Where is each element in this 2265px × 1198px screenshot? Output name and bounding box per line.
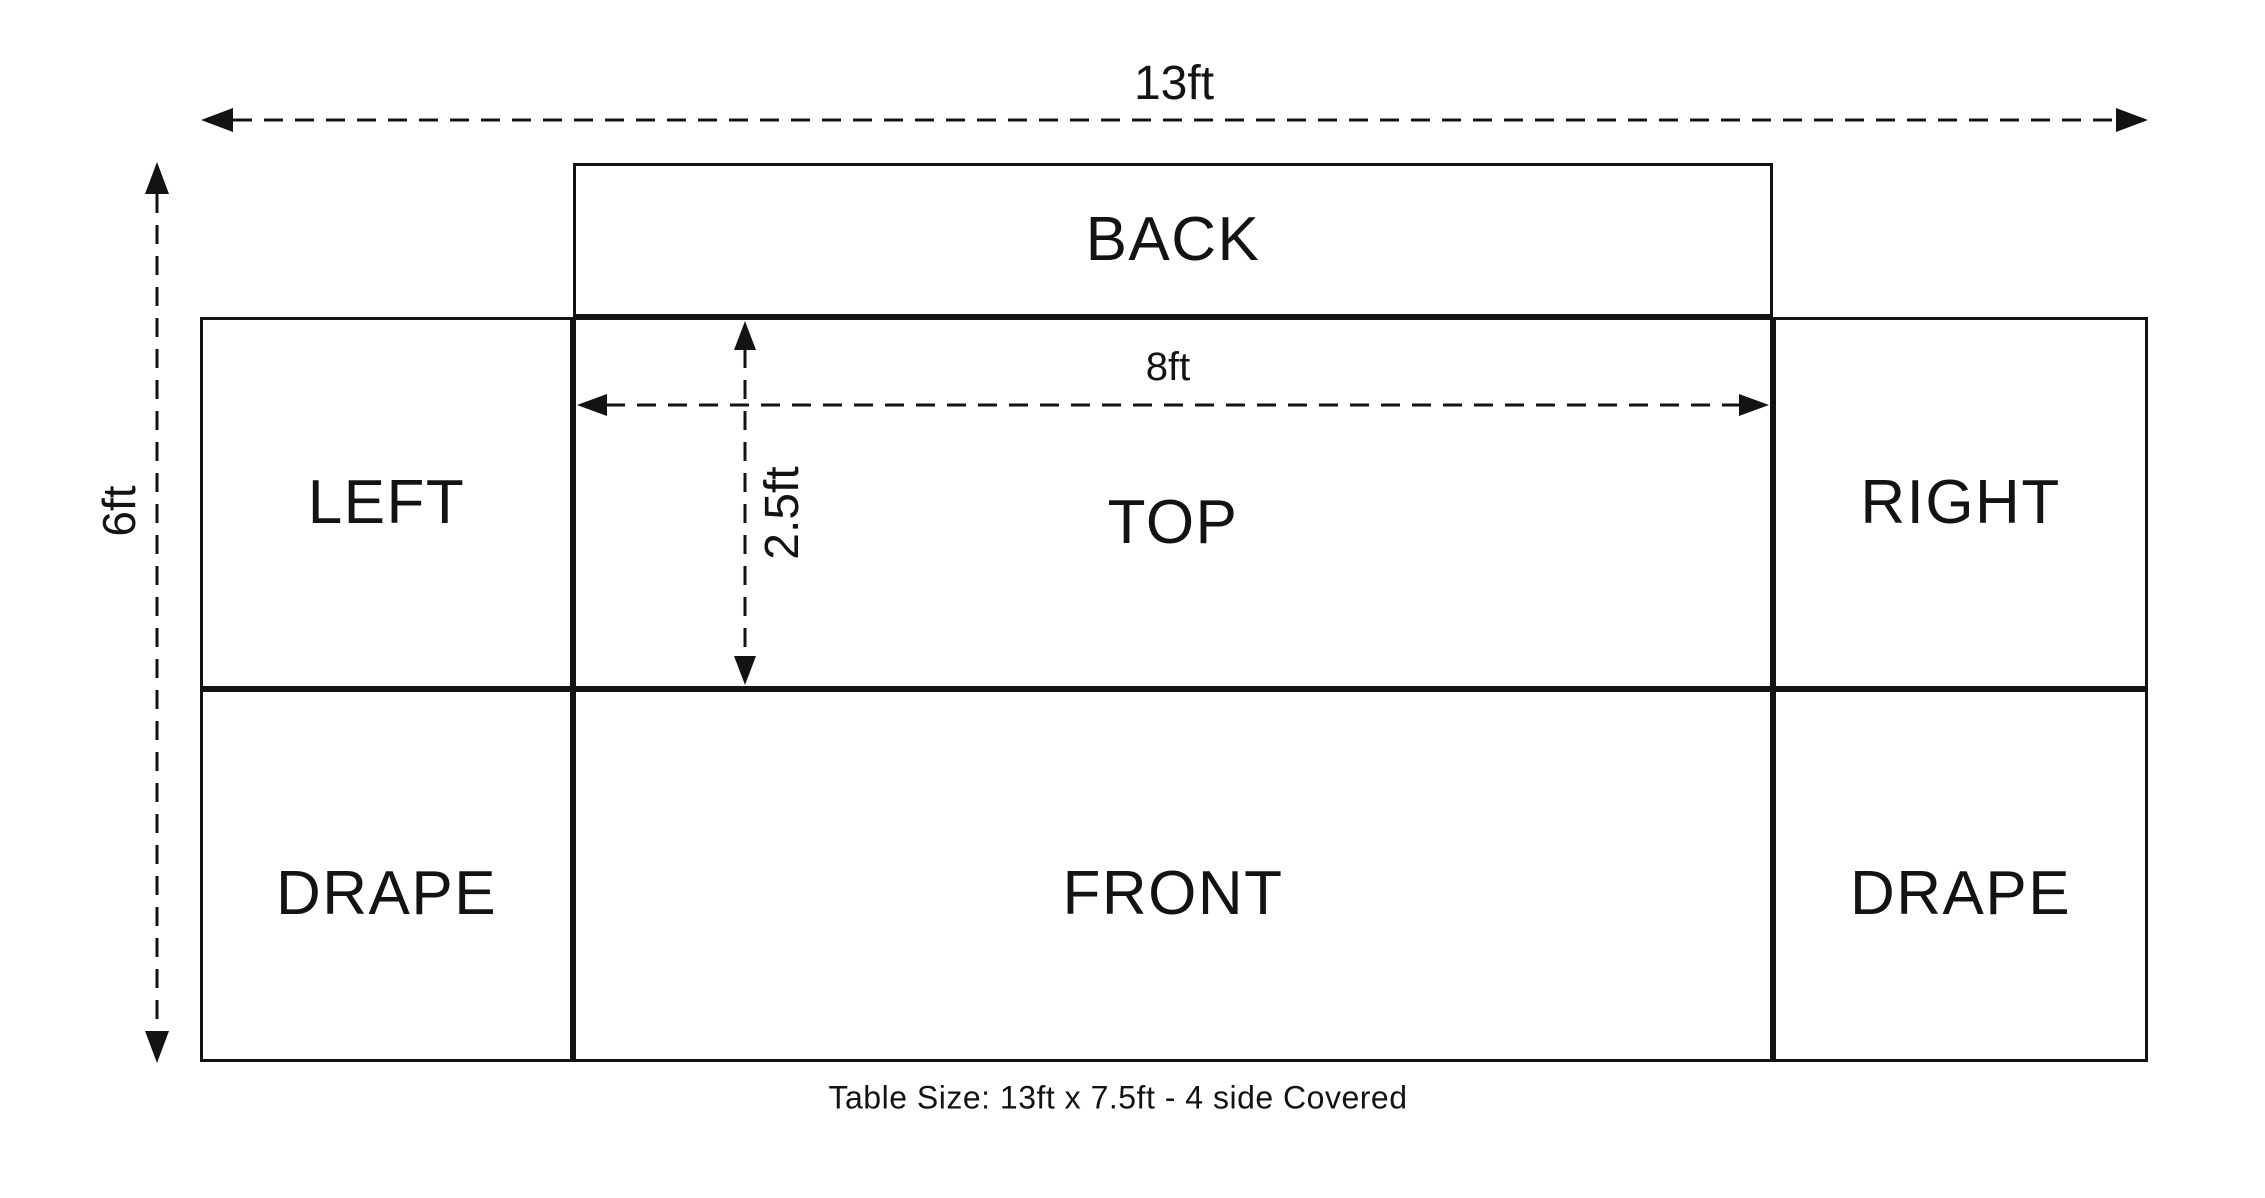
- panel-front: FRONT: [573, 689, 1773, 1062]
- panel-left: LEFT: [200, 317, 573, 689]
- arrowhead-right-icon: [2116, 108, 2148, 132]
- arrowhead-left-icon: [201, 108, 233, 132]
- total-width-arrow: [201, 108, 2148, 132]
- top-width-dimension-label: 8ft: [1146, 347, 1190, 387]
- panel-back: BACK: [573, 163, 1773, 317]
- panel-left-label: LEFT: [308, 472, 466, 534]
- panel-drape-right-label: DRAPE: [1850, 863, 2071, 925]
- arrowhead-down-icon: [145, 1031, 169, 1063]
- panel-drape-left-label: DRAPE: [276, 863, 497, 925]
- table-cover-size-diagram: BACK LEFT TOP RIGHT DRAPE FRONT DRAPE 13…: [0, 0, 2265, 1198]
- total-width-dimension-label: 13ft: [1134, 60, 1214, 108]
- arrowhead-up-icon: [145, 162, 169, 194]
- total-height-dimension-label: 6ft: [96, 485, 142, 536]
- panel-back-label: BACK: [1086, 209, 1261, 271]
- panel-right: RIGHT: [1773, 317, 2148, 689]
- total-height-arrow: [145, 162, 169, 1063]
- panel-top-label: TOP: [1108, 492, 1239, 554]
- top-depth-dimension-label: 2.5ft: [759, 466, 807, 559]
- table-size-caption: Table Size: 13ft x 7.5ft - 4 side Covere…: [828, 1080, 1407, 1117]
- panel-front-label: FRONT: [1062, 863, 1283, 925]
- panel-drape-right: DRAPE: [1773, 689, 2148, 1062]
- panel-drape-left: DRAPE: [200, 689, 573, 1062]
- panel-right-label: RIGHT: [1860, 472, 2060, 534]
